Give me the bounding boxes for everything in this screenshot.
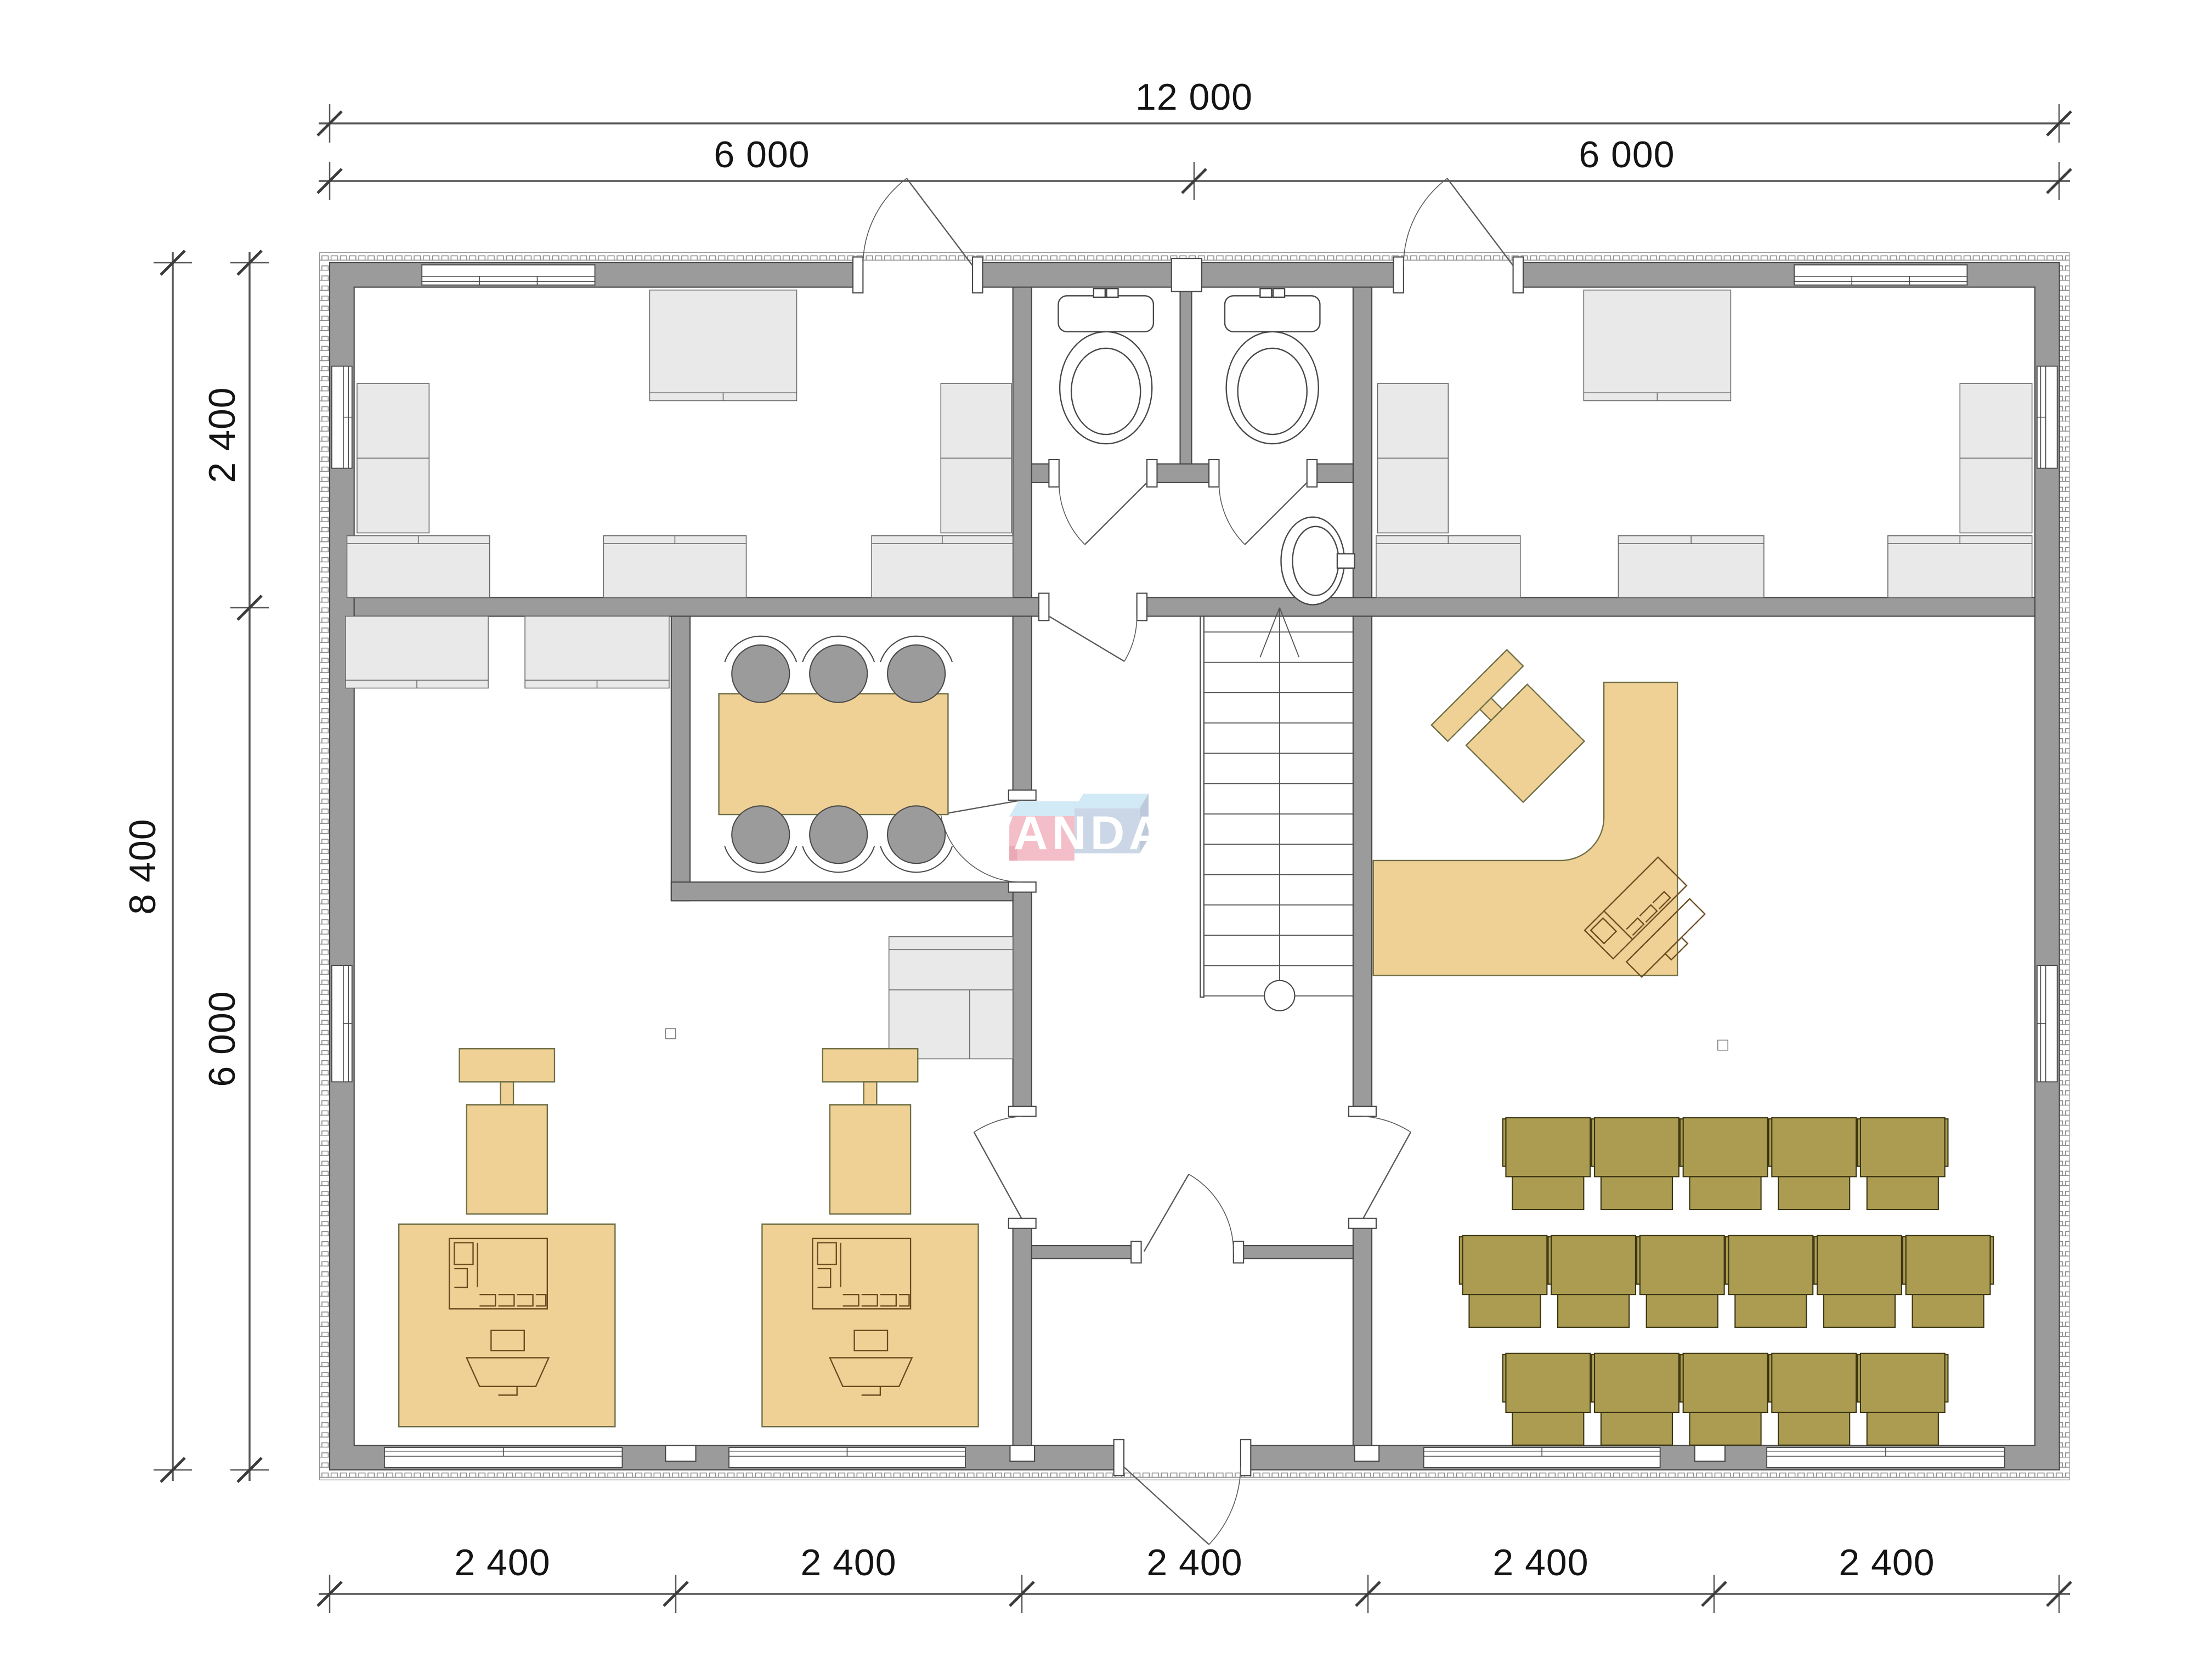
wall-nook-left [671, 616, 690, 901]
door-toilet-vestibule [1039, 593, 1147, 661]
dimension-bottom-parts: 2 400 2 400 2 400 2 400 2 400 [318, 1542, 2071, 1613]
audience-chair [1680, 1354, 1771, 1445]
task-chair-seat [830, 1105, 911, 1214]
audience-chair [1460, 1236, 1550, 1327]
dim-left-lower-label: 6 000 [201, 991, 243, 1087]
floor-plan: VANDA [320, 178, 2069, 1545]
task-chair-stem [864, 1082, 877, 1105]
floorplan-canvas: 12 000 6 000 6 000 8 400 2 400 6 000 2 4… [0, 0, 2194, 1680]
window-top-right-room [1794, 265, 1967, 285]
dim-left-total-label: 8 400 [122, 818, 163, 914]
desk-topleft-1 [347, 536, 490, 598]
wall-main-horizontal [354, 597, 2035, 616]
cabinet-topright-leftwall [1378, 383, 1449, 533]
window-bottom-left-b [729, 1447, 965, 1468]
audience-chair [1814, 1236, 1904, 1327]
cabinet-topright-rightwall [1960, 383, 2032, 533]
workstation-desk [399, 1224, 615, 1427]
conference-chair [810, 645, 867, 703]
vent-top-wall [1172, 258, 1202, 291]
dim-left-upper-label: 2 400 [201, 387, 243, 483]
floor-marker-right-room [1718, 1040, 1728, 1050]
watermark-blue-top-face [1075, 794, 1149, 808]
conference-area [719, 636, 952, 872]
conference-chair [732, 645, 789, 703]
cabinet-topleft-leftwall [357, 383, 429, 533]
watermark-text: VANDA [981, 807, 1167, 859]
door-main-entrance [1114, 1440, 1251, 1545]
door-entry-top-right-room [1393, 178, 1523, 293]
window-right-wall-upper [2037, 366, 2057, 468]
dim-top-left-half-label: 6 000 [714, 134, 810, 176]
workstation [399, 1049, 615, 1427]
counter-leftroom-1 [346, 616, 488, 688]
door-left-room [974, 1106, 1036, 1229]
conference-chair [887, 806, 945, 863]
window-left-wall-lower [332, 965, 352, 1082]
door-right-room [1349, 1106, 1411, 1229]
conference-chair [732, 806, 789, 863]
wall-corridor-left [1013, 616, 1032, 1446]
threshold-vestibule-left [1010, 1445, 1034, 1461]
wall-nook-bottom [671, 882, 1013, 901]
stair-start-circle [1264, 981, 1294, 1011]
wall-toilet-left-upper [1013, 287, 1032, 598]
workstations [399, 1049, 978, 1427]
dim-bottom-5-label: 2 400 [1839, 1542, 1935, 1583]
audience-chair [1591, 1118, 1682, 1209]
window-bottom-right-b [1767, 1447, 2005, 1468]
task-chair-backrest [460, 1049, 555, 1082]
dim-top-right-half-label: 6 000 [1579, 134, 1675, 176]
audience-chairs [1460, 1118, 1993, 1445]
stair-treads [1204, 632, 1353, 995]
dim-bottom-3-label: 2 400 [1146, 1542, 1242, 1583]
audience-chair [1680, 1118, 1771, 1209]
wall-toilet-right-upper [1353, 287, 1372, 598]
desk-topright-1 [1376, 536, 1520, 598]
audience-chair [1503, 1118, 1593, 1209]
dim-bottom-4-label: 2 400 [1492, 1542, 1588, 1583]
kitchenette-unit [889, 937, 1013, 1059]
threshold-vestibule-right [1355, 1445, 1379, 1461]
desk-topleft-2 [603, 536, 746, 598]
dim-bottom-2-label: 2 400 [800, 1542, 896, 1583]
window-bottom-right-a [1424, 1447, 1660, 1468]
door-entry-top-left-room [853, 178, 983, 293]
workstation [762, 1049, 978, 1427]
dimension-left-parts: 2 400 6 000 [201, 251, 269, 1482]
counter-leftroom-2 [525, 616, 669, 688]
dimension-top-total: 12 000 [318, 76, 2071, 143]
task-chair-seat [467, 1105, 547, 1214]
wall-corridor-right [1353, 616, 1372, 1446]
audience-chair [1548, 1236, 1638, 1327]
task-chair-stem [500, 1082, 513, 1105]
audience-chair [1769, 1354, 1859, 1445]
audience-chair [1591, 1354, 1682, 1445]
stair-direction-line [1260, 608, 1299, 995]
audience-chair [1903, 1236, 1993, 1327]
window-right-wall-lower [2037, 965, 2057, 1082]
dimension-top-halves: 6 000 6 000 [318, 134, 2071, 200]
toilet-left [1058, 289, 1153, 444]
window-top-left-room [422, 265, 595, 285]
audience-chair [1637, 1236, 1727, 1327]
conference-table [719, 694, 948, 814]
audience-chair [1857, 1354, 1948, 1445]
audience-chair [1503, 1354, 1593, 1445]
audience-chair [1857, 1118, 1948, 1209]
desk-topright-3 [1888, 536, 2032, 598]
conference-chair [887, 645, 945, 703]
dim-bottom-1-label: 2 400 [454, 1542, 550, 1583]
floor-marker-left-room [665, 1028, 675, 1038]
sanitary [1058, 289, 1354, 604]
sink [1281, 517, 1354, 605]
door-vestibule-hall [1131, 1174, 1243, 1263]
dim-top-total-label: 12 000 [1135, 76, 1253, 118]
reception-chair [1432, 650, 1592, 810]
cabinet-topleft-rightwall [941, 383, 1011, 533]
conference-chair [810, 806, 867, 863]
window-bottom-left-a [384, 1447, 623, 1468]
audience-chair [1769, 1118, 1859, 1209]
audience-chair [1726, 1236, 1816, 1327]
vent-bottom-left-pier [665, 1445, 695, 1461]
cabinet-topleft-topwall [649, 290, 796, 401]
wall-toilet-divider [1180, 287, 1192, 483]
cabinet-topright-topwall [1584, 290, 1731, 401]
task-chair-backrest [823, 1049, 918, 1082]
desk-topright-2 [1618, 536, 1763, 598]
vent-bottom-right-pier [1695, 1445, 1725, 1461]
dimension-left-total: 8 400 [122, 251, 192, 1482]
window-left-wall-upper [332, 366, 352, 468]
desk-topleft-3 [872, 536, 1013, 598]
stairs [1200, 608, 1353, 1011]
reception-area [1373, 650, 1716, 988]
door-wc-stall-left [1049, 460, 1157, 545]
toilet-right [1225, 289, 1320, 444]
vanda-watermark: VANDA [981, 794, 1167, 861]
workstation-desk [762, 1224, 978, 1427]
stair-stringer [1200, 616, 1204, 997]
